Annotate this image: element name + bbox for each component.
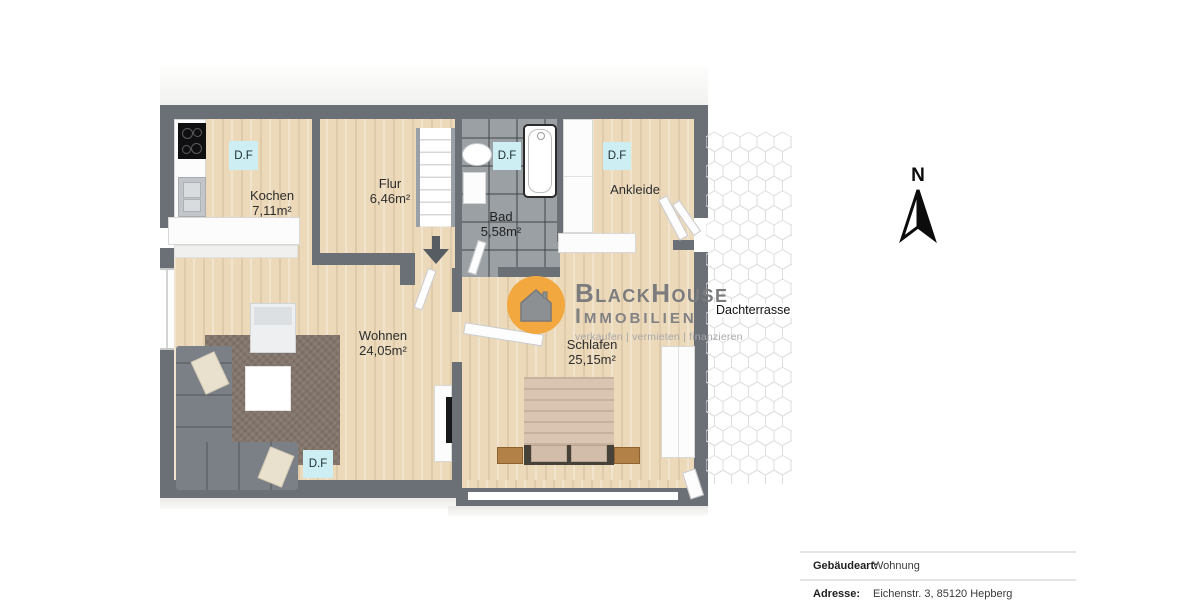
logo-name-line1: BlackHouse	[575, 280, 743, 306]
detail-value: Eichenstr. 3, 85120 Hepberg	[873, 588, 1012, 600]
skylight-text: D.F	[498, 150, 517, 162]
window-bedroom-bottom	[468, 492, 678, 500]
nightstand-icon	[614, 447, 640, 464]
plan-base-shadow	[160, 498, 456, 509]
bathtub-icon	[523, 124, 557, 198]
room-label-wohnen: Wohnen 24,05m²	[323, 328, 443, 359]
skylight-label-bad: D.F	[493, 142, 521, 170]
wall-wohnen-schlafen-bottom	[452, 362, 462, 492]
wall-wohnen-schlafen-top	[452, 268, 462, 312]
wardrobe-schlafen	[661, 346, 695, 458]
coffee-table-icon	[246, 367, 290, 410]
skylight-text: D.F	[608, 150, 627, 162]
wall-ankleide-bottom-right	[673, 240, 694, 250]
kitchen-sink-icon	[178, 177, 206, 217]
tv-icon	[446, 397, 452, 443]
logo-house-icon	[507, 276, 565, 334]
logo-name-line2: Immobilien	[575, 306, 743, 328]
kitchen-counter-bottom	[168, 217, 300, 245]
wall-stub-corridor	[400, 265, 415, 285]
north-label: N	[893, 166, 943, 185]
logo-text: BlackHouse Immobilien verkaufen | vermie…	[575, 280, 743, 343]
wall-flur-bad	[455, 119, 462, 277]
room-label-ankleide: Ankleide	[575, 182, 695, 197]
kitchen-counter-face	[174, 245, 298, 258]
room-label-bad: Bad 5,58m²	[441, 209, 561, 240]
stair-direction-arrow-icon	[423, 236, 449, 264]
detail-value: Wohnung	[873, 560, 920, 572]
north-indicator: N	[893, 166, 943, 248]
wall-top	[160, 105, 708, 119]
skylight-label-ankleide: D.F	[603, 142, 631, 170]
toilet-icon	[462, 143, 492, 166]
detail-label: Adresse:	[813, 588, 873, 600]
detail-row-adresse: Adresse: Eichenstr. 3, 85120 Hepberg	[800, 579, 1076, 600]
skylight-label-kochen: D.F	[229, 141, 258, 170]
company-logo: BlackHouse Immobilien verkaufen | vermie…	[507, 276, 827, 338]
roof-band	[160, 66, 708, 105]
plan-base-shadow	[448, 506, 708, 516]
floorplan-page: D.F Kochen 7,11m² Flur 6,46m² D.F Bad 5,…	[0, 0, 1200, 600]
logo-tagline: verkaufen | vermieten | finanzieren	[575, 331, 743, 343]
detail-label: Gebäudeart:	[813, 560, 873, 572]
wall-below-flur	[312, 253, 415, 265]
window-living-left	[160, 268, 174, 350]
detail-row-gebaeudeart: Gebäudeart: Wohnung	[800, 551, 1076, 579]
north-arrow-icon	[895, 187, 941, 243]
wardrobe-ankleide-bottom	[558, 233, 636, 253]
wall-kochen-flur	[312, 119, 320, 253]
skylight-label-wohnen: D.F	[303, 450, 333, 478]
room-label-kochen: Kochen 7,11m²	[217, 188, 327, 219]
room-label-flur: Flur 6,46m²	[335, 176, 445, 207]
bath-sink-icon	[463, 172, 486, 204]
bed-icon	[524, 377, 614, 465]
cooktop-icon	[178, 123, 206, 159]
nightstand-icon	[497, 447, 523, 464]
skylight-text: D.F	[309, 458, 328, 470]
wardrobe-ankleide-left	[563, 119, 593, 233]
property-details-table: Gebäudeart: Wohnung Adresse: Eichenstr. …	[800, 551, 1076, 600]
skylight-text: D.F	[234, 150, 253, 162]
armchair-icon	[250, 303, 296, 353]
